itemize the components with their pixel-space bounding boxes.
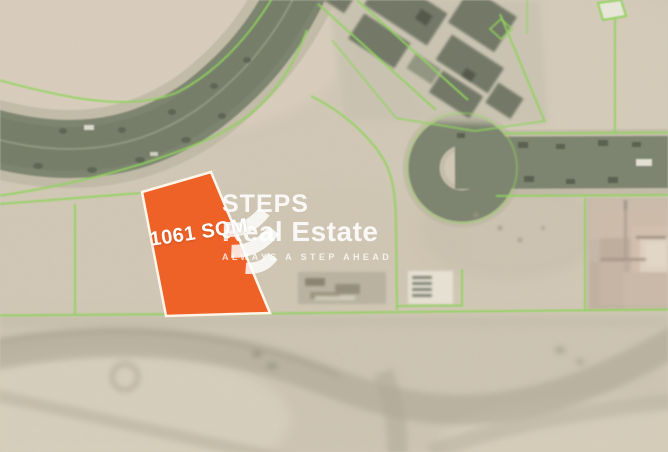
aerial-map-listing-image: 1061 SQM STEPS Real Estate ALWAYS A STEP… [0, 0, 668, 452]
highlight-layer [0, 0, 668, 452]
